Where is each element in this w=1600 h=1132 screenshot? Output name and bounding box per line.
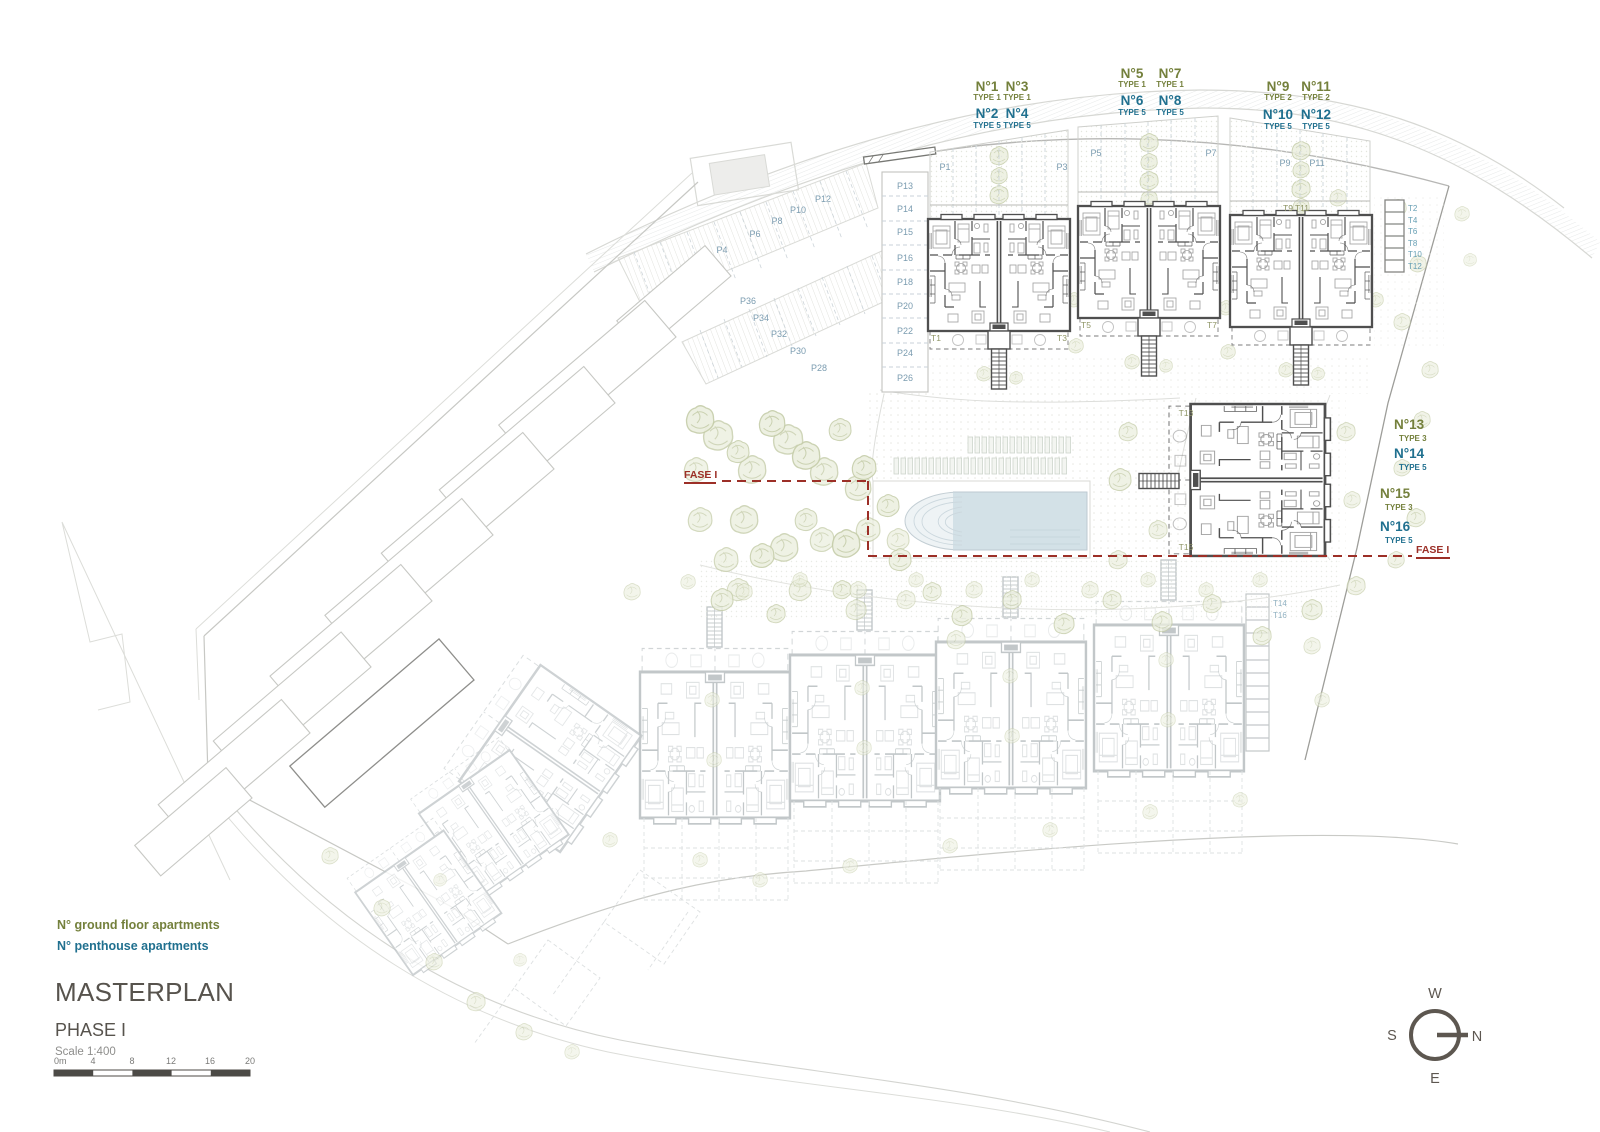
svg-text:T13: T13 <box>1179 408 1194 418</box>
svg-text:P4: P4 <box>716 245 727 255</box>
svg-text:N°4: N°4 <box>1006 106 1029 121</box>
svg-text:P9: P9 <box>1279 158 1290 168</box>
svg-text:T5: T5 <box>1081 320 1091 330</box>
svg-text:N: N <box>1472 1029 1482 1045</box>
svg-text:N°1: N°1 <box>976 79 999 94</box>
svg-text:N°10: N°10 <box>1263 107 1293 122</box>
svg-text:T8: T8 <box>1408 239 1418 248</box>
svg-text:P15: P15 <box>897 227 913 237</box>
svg-text:N°7: N°7 <box>1159 66 1182 81</box>
svg-text:TYPE 3: TYPE 3 <box>1399 434 1427 443</box>
svg-text:N°2: N°2 <box>976 106 999 121</box>
svg-text:P6: P6 <box>749 229 760 239</box>
svg-text:N°11: N°11 <box>1301 79 1331 94</box>
svg-text:TYPE 5: TYPE 5 <box>1156 108 1184 117</box>
svg-text:TYPE 1: TYPE 1 <box>973 93 1001 102</box>
svg-text:TYPE 5: TYPE 5 <box>1003 121 1031 130</box>
svg-text:T6: T6 <box>1408 227 1418 236</box>
svg-text:N°3: N°3 <box>1006 79 1029 94</box>
svg-text:T1: T1 <box>931 333 941 343</box>
svg-text:N°16: N°16 <box>1380 519 1411 534</box>
svg-text:P11: P11 <box>1309 158 1324 168</box>
svg-text:T9: T9 <box>1283 203 1293 213</box>
svg-text:P20: P20 <box>897 301 913 311</box>
svg-text:0m: 0m <box>54 1056 67 1066</box>
svg-text:P3: P3 <box>1056 162 1067 172</box>
svg-text:TYPE 3: TYPE 3 <box>1385 503 1413 512</box>
svg-text:TYPE 2: TYPE 2 <box>1264 93 1292 102</box>
svg-text:N°5: N°5 <box>1121 66 1144 81</box>
svg-text:P28: P28 <box>811 363 827 373</box>
svg-text:T3: T3 <box>1057 333 1067 343</box>
svg-text:N°6: N°6 <box>1121 93 1144 108</box>
svg-text:TYPE 5: TYPE 5 <box>1302 122 1330 131</box>
svg-text:P32: P32 <box>771 329 787 339</box>
svg-text:N°9: N°9 <box>1267 79 1290 94</box>
svg-text:TYPE 5: TYPE 5 <box>1385 536 1413 545</box>
svg-text:T10: T10 <box>1408 250 1422 259</box>
svg-text:12: 12 <box>166 1056 176 1066</box>
svg-text:TYPE 1: TYPE 1 <box>1118 80 1146 89</box>
svg-text:MASTERPLAN: MASTERPLAN <box>55 977 234 1007</box>
svg-text:P8: P8 <box>771 216 782 226</box>
svg-text:N°12: N°12 <box>1301 107 1331 122</box>
svg-text:T11: T11 <box>1295 203 1309 213</box>
svg-text:TYPE 2: TYPE 2 <box>1302 93 1330 102</box>
svg-text:N°13: N°13 <box>1394 417 1425 432</box>
svg-text:N°15: N°15 <box>1380 486 1411 501</box>
svg-text:P12: P12 <box>815 194 831 204</box>
svg-text:P30: P30 <box>790 346 806 356</box>
svg-text:20: 20 <box>245 1056 255 1066</box>
svg-text:T15: T15 <box>1179 542 1194 552</box>
svg-text:P26: P26 <box>897 373 913 383</box>
svg-text:N°14: N°14 <box>1394 446 1425 461</box>
svg-text:T2: T2 <box>1408 204 1418 213</box>
svg-text:T12: T12 <box>1408 262 1422 271</box>
svg-text:T4: T4 <box>1408 216 1418 225</box>
svg-text:W: W <box>1428 986 1442 1002</box>
svg-text:TYPE 1: TYPE 1 <box>1156 80 1184 89</box>
svg-text:P34: P34 <box>753 313 769 323</box>
svg-text:E: E <box>1430 1071 1440 1087</box>
svg-text:T7: T7 <box>1207 320 1217 330</box>
svg-text:P1: P1 <box>939 162 950 172</box>
svg-text:PHASE I: PHASE I <box>55 1020 126 1040</box>
svg-text:P16: P16 <box>897 253 913 263</box>
svg-text:P36: P36 <box>740 296 756 306</box>
svg-text:TYPE 5: TYPE 5 <box>1399 463 1427 472</box>
svg-text:N° ground floor apartments: N° ground floor apartments <box>57 918 220 932</box>
svg-text:P18: P18 <box>897 277 913 287</box>
svg-text:P7: P7 <box>1205 148 1216 158</box>
svg-text:P14: P14 <box>897 204 913 214</box>
svg-text:8: 8 <box>129 1056 134 1066</box>
svg-text:P22: P22 <box>897 326 913 336</box>
svg-text:FASE I: FASE I <box>684 469 717 481</box>
svg-text:TYPE 5: TYPE 5 <box>1264 122 1292 131</box>
svg-text:FASE I: FASE I <box>1416 544 1449 556</box>
svg-text:16: 16 <box>205 1056 215 1066</box>
svg-text:P13: P13 <box>897 181 913 191</box>
svg-text:S: S <box>1387 1028 1397 1044</box>
svg-text:TYPE 1: TYPE 1 <box>1003 93 1031 102</box>
svg-text:P10: P10 <box>790 205 806 215</box>
svg-text:N° penthouse apartments: N° penthouse apartments <box>57 939 209 953</box>
svg-text:P24: P24 <box>897 348 913 358</box>
svg-text:P5: P5 <box>1090 148 1101 158</box>
svg-text:TYPE 5: TYPE 5 <box>1118 108 1146 117</box>
svg-text:4: 4 <box>90 1056 95 1066</box>
svg-text:TYPE 5: TYPE 5 <box>973 121 1001 130</box>
svg-text:N°8: N°8 <box>1159 93 1182 108</box>
